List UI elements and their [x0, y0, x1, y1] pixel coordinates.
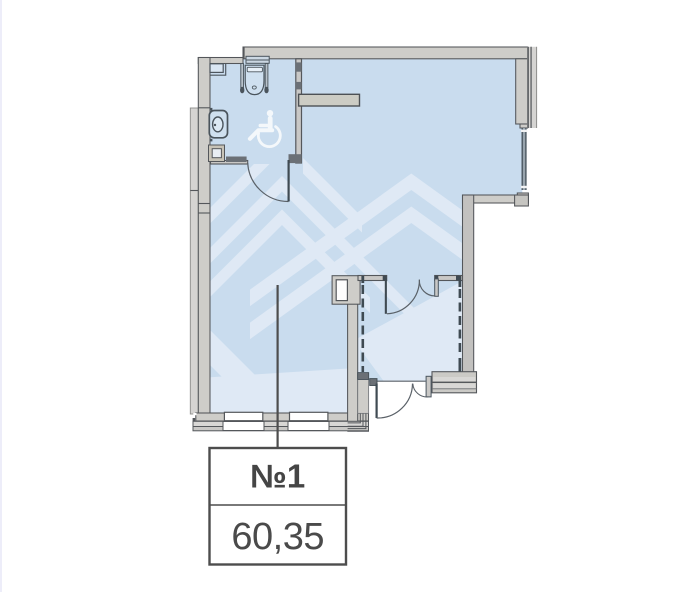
svg-text:№1: №1	[250, 458, 305, 495]
svg-text:60,35: 60,35	[231, 516, 324, 558]
